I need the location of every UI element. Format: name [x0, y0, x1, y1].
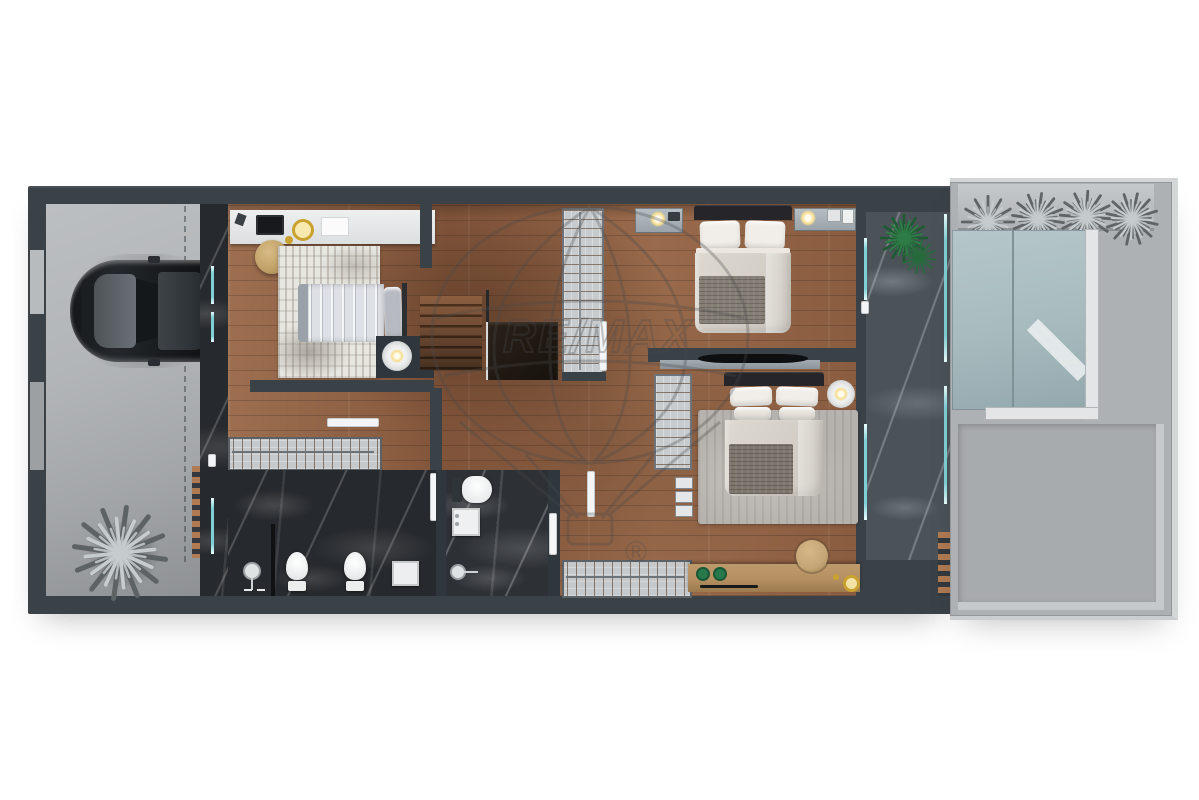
- car-windshield: [136, 276, 158, 346]
- vanity-chair: [796, 540, 828, 572]
- single-bed-duvet: [298, 284, 384, 342]
- watermark-text: RE/MAX: [503, 310, 693, 362]
- registered-mark: ®: [625, 536, 647, 569]
- balloon-rope: [460, 422, 572, 516]
- silver-plant: [1107, 194, 1157, 244]
- watermark-balloon: RE/MAX ®: [398, 200, 788, 570]
- table-lamp-glow: [834, 387, 848, 401]
- glass-railing: [864, 238, 867, 300]
- balloon-rope: [608, 422, 720, 516]
- car-mirror-left: [148, 256, 160, 263]
- closet-rail: [566, 576, 684, 578]
- garden-gate: [30, 382, 44, 470]
- shower-arm: [464, 571, 478, 573]
- glass-divider: [271, 524, 275, 596]
- closet-rail: [232, 451, 374, 453]
- agave-plant: [74, 507, 166, 599]
- duvet-drape: [798, 420, 823, 496]
- skylight: [952, 230, 1086, 410]
- skylight-mullion: [1012, 230, 1014, 410]
- bidet: [344, 552, 366, 592]
- bed-fold: [298, 284, 308, 342]
- notepad: [322, 218, 348, 235]
- glass-railing: [944, 386, 947, 504]
- table-lamp-glow: [800, 210, 816, 226]
- shower-valve: [244, 589, 252, 591]
- balloon-rope: [526, 454, 578, 518]
- palm-plant: [901, 239, 937, 275]
- entry-glass-panel: [211, 266, 214, 304]
- closet: [228, 437, 382, 471]
- toilet-bowl: [286, 552, 308, 580]
- railing-post: [862, 302, 868, 313]
- glass-railing: [864, 424, 867, 520]
- toilet: [286, 552, 308, 592]
- bidet-base: [346, 581, 364, 591]
- balloon-band: [444, 361, 736, 376]
- car-mirror-right: [148, 359, 160, 366]
- dresser-tray: [700, 585, 758, 588]
- balloon-basket: [568, 514, 612, 544]
- car: [70, 260, 216, 362]
- toilet-base: [288, 581, 306, 591]
- glass-railing: [944, 214, 947, 362]
- car-roof: [94, 274, 136, 348]
- side-gate: [30, 250, 44, 314]
- desk-lamp: [292, 219, 314, 241]
- skylight-frame: [1086, 230, 1098, 420]
- entry-glass-panel: [211, 498, 214, 554]
- phone-dock: [843, 210, 853, 223]
- shower-valve: [257, 589, 265, 591]
- terrace-inner-floor: [958, 424, 1164, 610]
- entry-glass-panel: [211, 312, 214, 342]
- car-rear-window: [82, 278, 94, 344]
- gold-decor: [285, 236, 293, 244]
- entry-door-frame: [209, 455, 215, 466]
- skylight-frame: [986, 408, 1098, 419]
- entry-strip-floor: [200, 204, 228, 596]
- bidet-bowl: [344, 552, 366, 580]
- alarm-clock: [828, 210, 840, 221]
- sliding-door: [328, 419, 378, 426]
- floor-plan-render: RE/MAX ®: [0, 0, 1199, 800]
- laptop: [256, 215, 284, 235]
- gold-decor: [843, 575, 860, 592]
- shower-head: [245, 564, 259, 578]
- balloon-rope: [602, 454, 654, 518]
- gold-decor: [833, 574, 839, 580]
